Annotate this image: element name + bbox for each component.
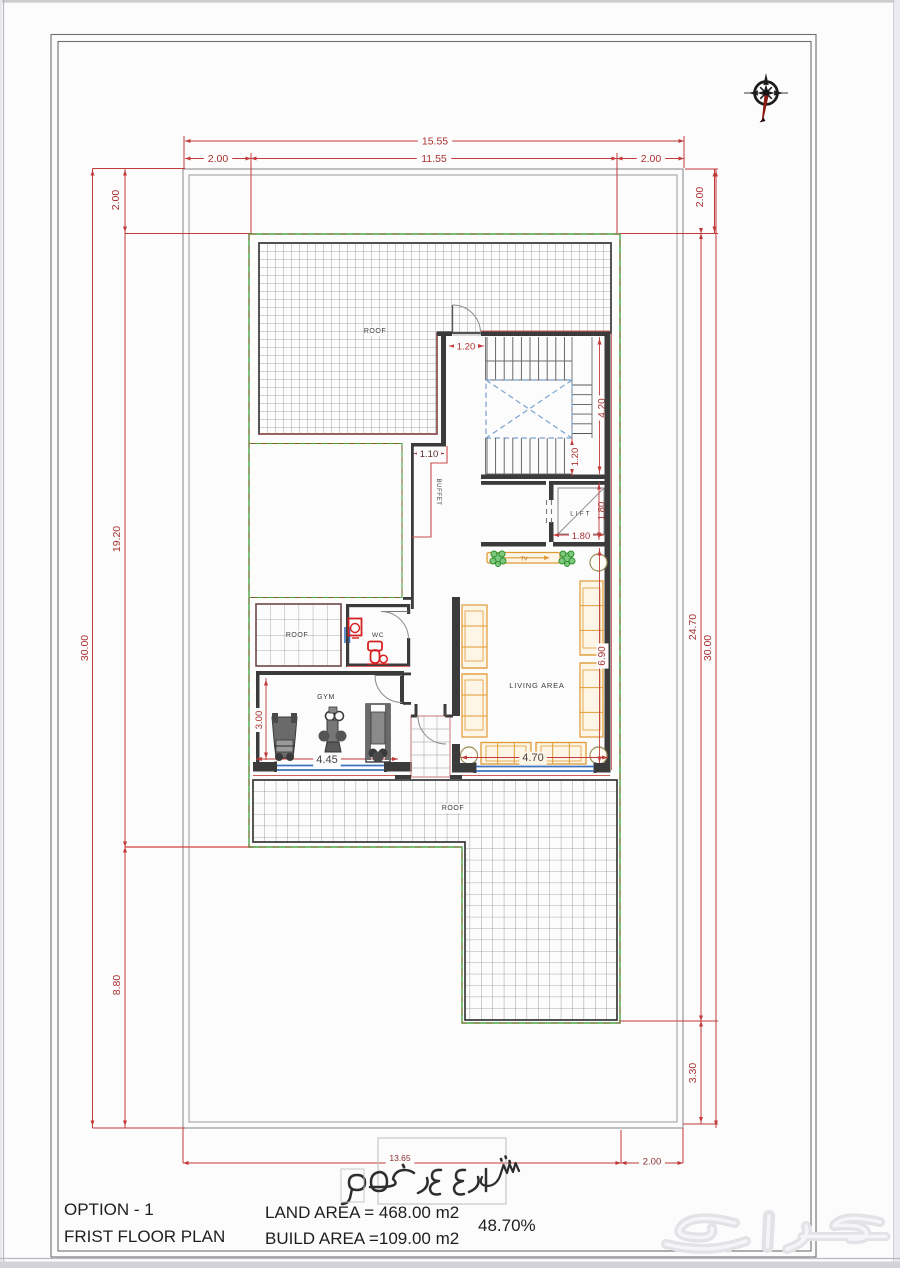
svg-text:1.20: 1.20 <box>570 448 581 467</box>
svg-text:48.70%: 48.70% <box>478 1216 536 1235</box>
svg-text:19.20: 19.20 <box>111 526 123 552</box>
svg-text:30.00: 30.00 <box>702 635 714 661</box>
svg-text:11.55: 11.55 <box>421 153 447 165</box>
svg-text:3.00: 3.00 <box>254 711 265 730</box>
svg-text:2.00: 2.00 <box>641 153 662 165</box>
svg-text:TV: TV <box>520 557 527 563</box>
svg-text:LAND AREA = 468.00 m2: LAND AREA = 468.00 m2 <box>265 1203 459 1222</box>
svg-text:BUFFET: BUFFET <box>435 479 441 506</box>
svg-text:2.00: 2.00 <box>110 190 122 211</box>
svg-text:3.30: 3.30 <box>687 1063 699 1084</box>
svg-text:24.70: 24.70 <box>687 614 699 640</box>
svg-text:6.90: 6.90 <box>597 646 608 666</box>
svg-text:2.00: 2.00 <box>208 153 229 165</box>
svg-text:OPTION - 1: OPTION - 1 <box>64 1200 154 1219</box>
svg-text:4.70: 4.70 <box>522 752 543 764</box>
svg-text:30.00: 30.00 <box>79 635 91 661</box>
svg-text:BUILD AREA =109.00 m2: BUILD AREA =109.00 m2 <box>265 1229 459 1248</box>
svg-text:8.80: 8.80 <box>111 975 123 996</box>
svg-text:1.10: 1.10 <box>420 449 439 460</box>
svg-text:GYM: GYM <box>317 694 335 701</box>
svg-text:2.00: 2.00 <box>694 187 706 208</box>
svg-text:ROOF: ROOF <box>364 328 386 335</box>
svg-text:4.45: 4.45 <box>316 754 337 766</box>
svg-text:13.65: 13.65 <box>389 1153 411 1163</box>
svg-text:15.55: 15.55 <box>422 136 448 148</box>
svg-text:LIFT: LIFT <box>570 511 592 518</box>
svg-text:ROOF: ROOF <box>286 632 308 639</box>
svg-text:1.20: 1.20 <box>457 342 476 353</box>
svg-text:LIVING AREA: LIVING AREA <box>509 681 565 690</box>
svg-text:FRIST FLOOR PLAN: FRIST FLOOR PLAN <box>64 1227 225 1246</box>
svg-text:WC: WC <box>372 632 384 639</box>
svg-text:ROOF: ROOF <box>442 805 464 812</box>
svg-text:2.00: 2.00 <box>643 1157 662 1168</box>
svg-text:1.80: 1.80 <box>572 531 591 542</box>
